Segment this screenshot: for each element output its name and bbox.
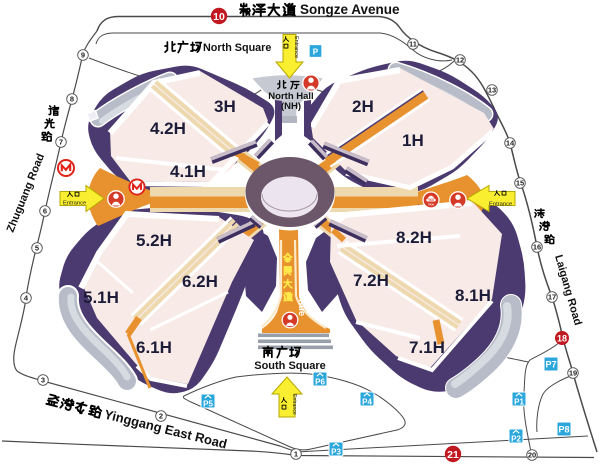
svg-text:Entrance: Entrance (63, 201, 86, 207)
svg-text:Entrance: Entrance (291, 394, 297, 415)
svg-text:8.2H: 8.2H (396, 228, 432, 247)
svg-text:Songze Avenue: Songze Avenue (300, 2, 400, 17)
svg-text:1H: 1H (402, 131, 424, 150)
svg-text:5: 5 (35, 244, 39, 253)
svg-text:20: 20 (528, 451, 536, 460)
svg-text:5.2H: 5.2H (136, 231, 172, 250)
svg-text:4.1H: 4.1H (170, 162, 206, 181)
svg-text:South Square: South Square (254, 360, 326, 372)
svg-text:P5: P5 (203, 399, 213, 408)
svg-text:5.1H: 5.1H (83, 288, 119, 307)
svg-text:North Square: North Square (203, 42, 271, 54)
svg-text:P7: P7 (545, 360, 556, 370)
svg-text:8: 8 (70, 95, 74, 104)
svg-text:7.2H: 7.2H (353, 271, 389, 290)
svg-text:Entrance: Entrance (489, 202, 512, 208)
svg-text:21: 21 (447, 449, 459, 461)
svg-text:6.2H: 6.2H (182, 272, 218, 291)
svg-text:P4: P4 (362, 397, 372, 406)
svg-text:7.1H: 7.1H (409, 338, 445, 357)
svg-text:3: 3 (41, 376, 45, 385)
svg-text:19: 19 (569, 369, 577, 378)
svg-text:9: 9 (81, 51, 85, 60)
svg-text:6.1H: 6.1H (136, 338, 172, 357)
svg-text:12: 12 (456, 56, 464, 65)
svg-text:11: 11 (409, 40, 417, 49)
svg-text:15: 15 (516, 179, 524, 188)
svg-text:1: 1 (294, 450, 298, 459)
svg-text:P8: P8 (558, 425, 569, 435)
svg-text:P1: P1 (514, 397, 524, 406)
svg-text:P6: P6 (315, 377, 325, 386)
svg-text:(NH): (NH) (281, 101, 301, 112)
svg-text:Exhibition Avenue: Exhibition Avenue (296, 234, 307, 316)
svg-text:2H: 2H (352, 97, 374, 116)
svg-text:P: P (313, 47, 319, 56)
svg-text:P3: P3 (331, 447, 341, 456)
svg-text:7: 7 (59, 138, 63, 147)
svg-text:18: 18 (557, 333, 567, 343)
svg-text:8.1H: 8.1H (455, 286, 491, 305)
svg-text:14: 14 (506, 139, 515, 148)
svg-text:Entrance: Entrance (293, 36, 299, 58)
svg-text:P2: P2 (511, 434, 521, 443)
svg-text:17: 17 (548, 293, 556, 302)
svg-text:10: 10 (213, 11, 225, 23)
svg-text:16: 16 (533, 243, 541, 252)
svg-text:6: 6 (43, 207, 47, 216)
svg-text:4.2H: 4.2H (150, 119, 186, 138)
svg-text:3H: 3H (214, 97, 236, 116)
svg-text:13: 13 (488, 86, 496, 95)
